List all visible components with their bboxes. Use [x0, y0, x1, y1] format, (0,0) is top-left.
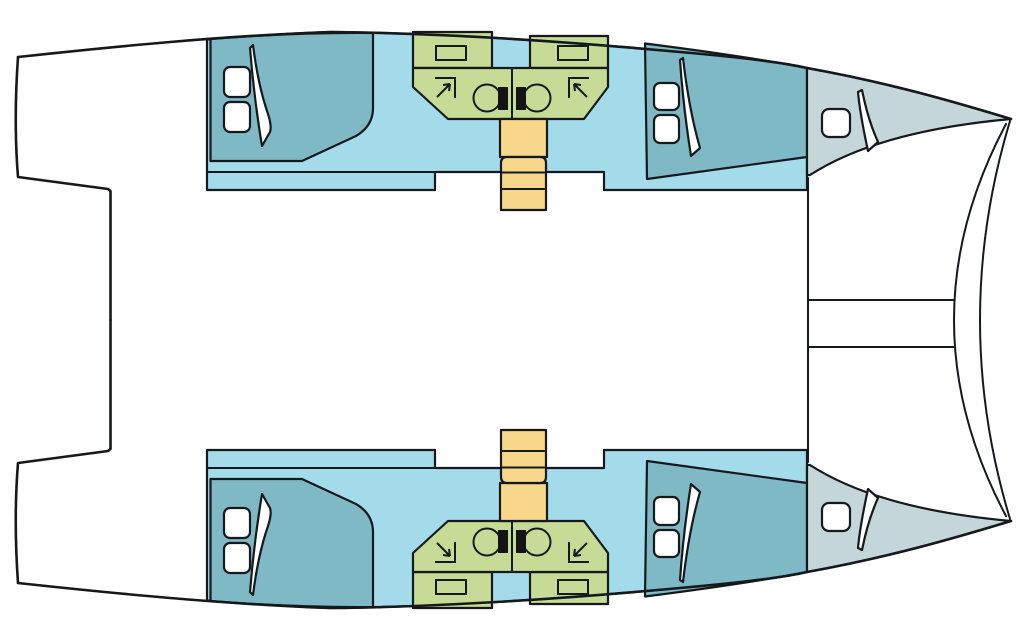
- bathroom: [413, 68, 608, 119]
- deck-hatch: [654, 115, 679, 143]
- deck-hatch: [224, 67, 250, 97]
- deck-hatch: [224, 102, 250, 132]
- port-hull: [16, 32, 1011, 320]
- bow-bridle-line: [980, 121, 1010, 519]
- bathroom-fixture: [498, 87, 508, 110]
- catamaran-floor-plan: [0, 0, 1028, 630]
- boat-diagram-canvas: [0, 0, 1028, 630]
- deck-hatch: [822, 109, 850, 137]
- companionway-stairs: [500, 119, 547, 210]
- starboard-hull: [16, 320, 1011, 608]
- bathroom-fixture: [516, 87, 526, 110]
- bow-structures: [808, 121, 1010, 519]
- stern-cockpit-outline: [16, 57, 111, 320]
- deck-hatch: [654, 83, 679, 110]
